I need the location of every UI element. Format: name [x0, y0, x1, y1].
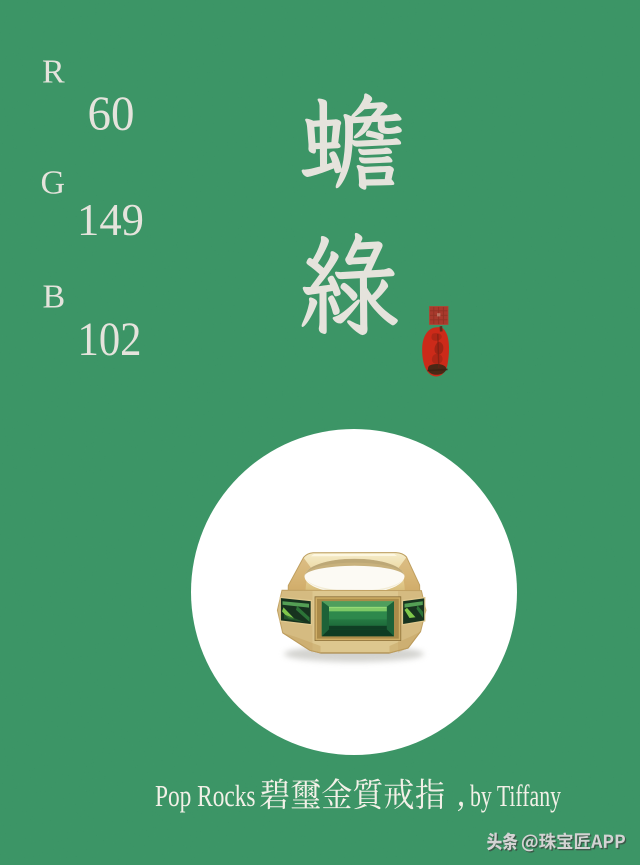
svg-text:Pop Rocks: Pop Rocks	[155, 778, 256, 813]
svg-text:by Tiffany: by Tiffany	[470, 778, 561, 813]
